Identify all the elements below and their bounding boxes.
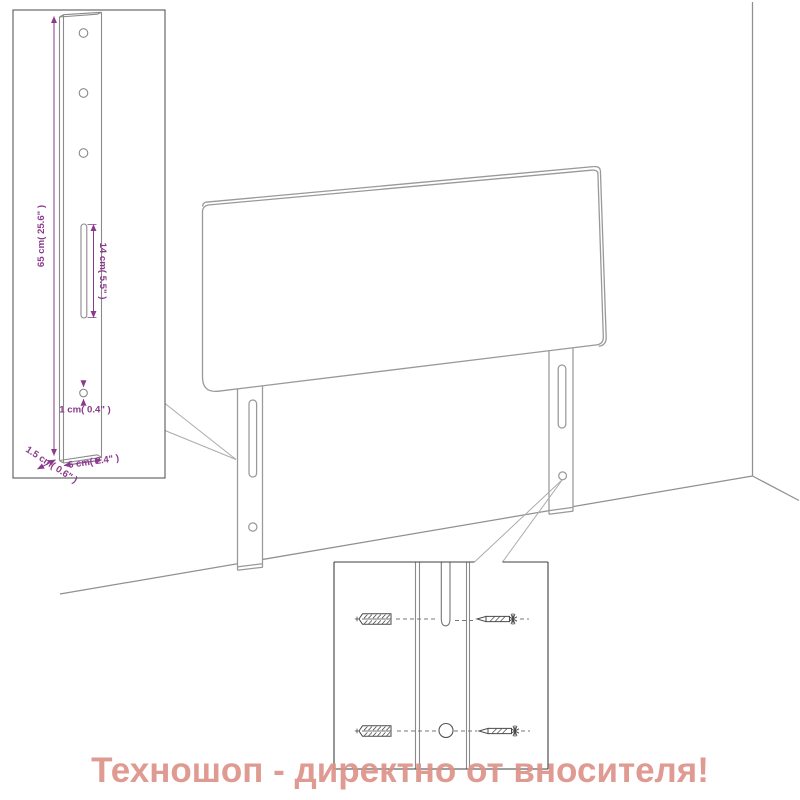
leg-slot — [81, 224, 87, 318]
callout-line-inset-to-left-leg-lower — [165, 431, 236, 460]
leg-screw-hole-1 — [79, 29, 88, 38]
product-image: 65 cm( 25.6" ) 14 cm( 5.5" ) 1 cm( 0.4" … — [0, 0, 800, 800]
headboard-front-face — [203, 170, 604, 391]
leg-screw-hole-3 — [79, 149, 88, 158]
left-leg-slot — [249, 400, 257, 477]
callout-line-inset-to-left-leg-upper — [165, 404, 236, 460]
leg-bottom-hole — [80, 389, 88, 397]
store-watermark-text: Техношоп - директно от вносителя! — [0, 751, 800, 791]
floor-line-right — [753, 476, 800, 501]
callout-line-hole-to-detail-right — [503, 480, 563, 563]
detail-hole — [439, 724, 453, 738]
assembly-diagram: 65 cm( 25.6" ) 14 cm( 5.5" ) 1 cm( 0.4" … — [0, 0, 800, 800]
hardware-detail-inset — [334, 562, 548, 769]
leg-screw-hole-2 — [79, 89, 88, 98]
leg-dimension-inset: 65 cm( 25.6" ) 14 cm( 5.5" ) 1 cm( 0.4" … — [13, 10, 165, 486]
right-leg-slot — [558, 365, 566, 428]
dim-label-height: 65 cm( 25.6" ) — [36, 205, 47, 267]
dim-label-hole: 1 cm( 0.4" ) — [59, 405, 110, 416]
callout-lines — [165, 404, 563, 563]
left-leg-hole — [249, 523, 257, 531]
headboard-panel — [203, 167, 607, 392]
dim-label-slot: 14 cm( 5.5" ) — [97, 243, 108, 300]
right-leg-hole — [559, 472, 567, 480]
left-leg — [238, 383, 263, 570]
